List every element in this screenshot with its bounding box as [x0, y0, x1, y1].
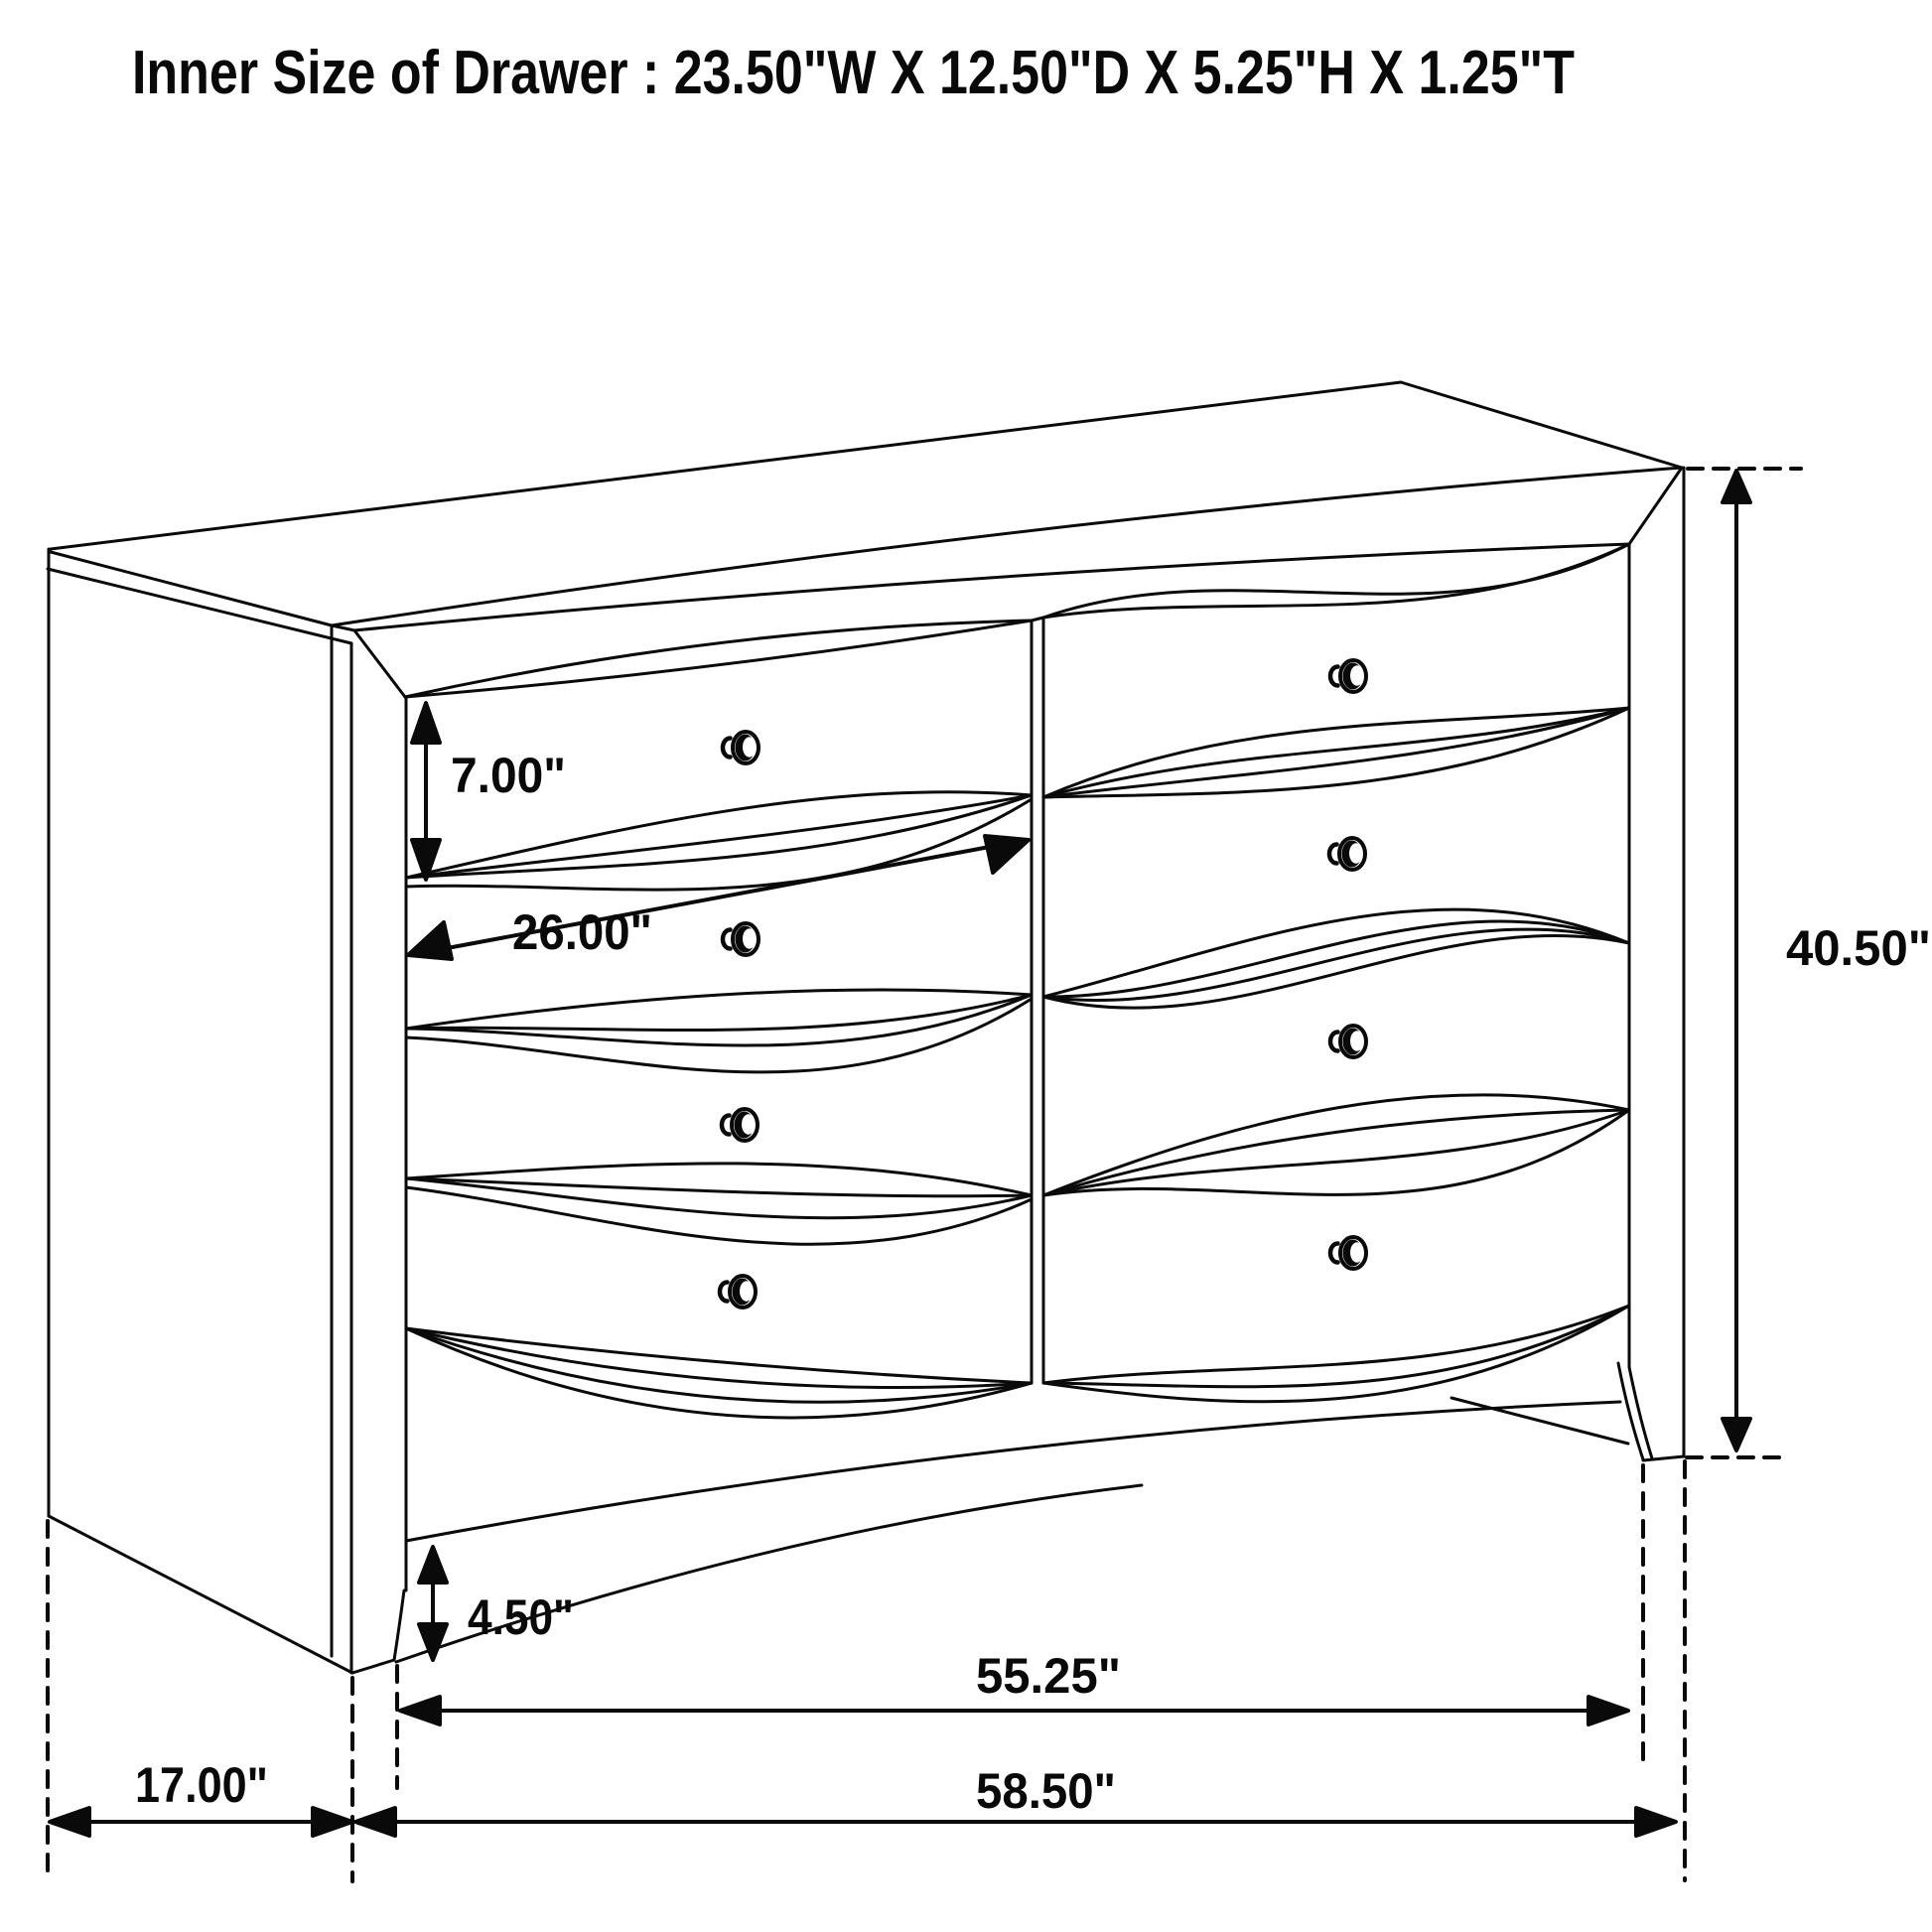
svg-text:17.00": 17.00": [135, 1757, 268, 1813]
svg-text:Inner Size of Drawer : 23.50"W: Inner Size of Drawer : 23.50"W X 12.50"D…: [132, 39, 1575, 107]
svg-text:58.50": 58.50": [976, 1763, 1116, 1819]
svg-text:7.00": 7.00": [451, 748, 566, 803]
svg-text:55.25": 55.25": [976, 1648, 1121, 1704]
svg-text:4.50": 4.50": [468, 1589, 574, 1645]
svg-text:26.00": 26.00": [512, 904, 652, 960]
svg-text:40.50": 40.50": [1786, 920, 1931, 976]
